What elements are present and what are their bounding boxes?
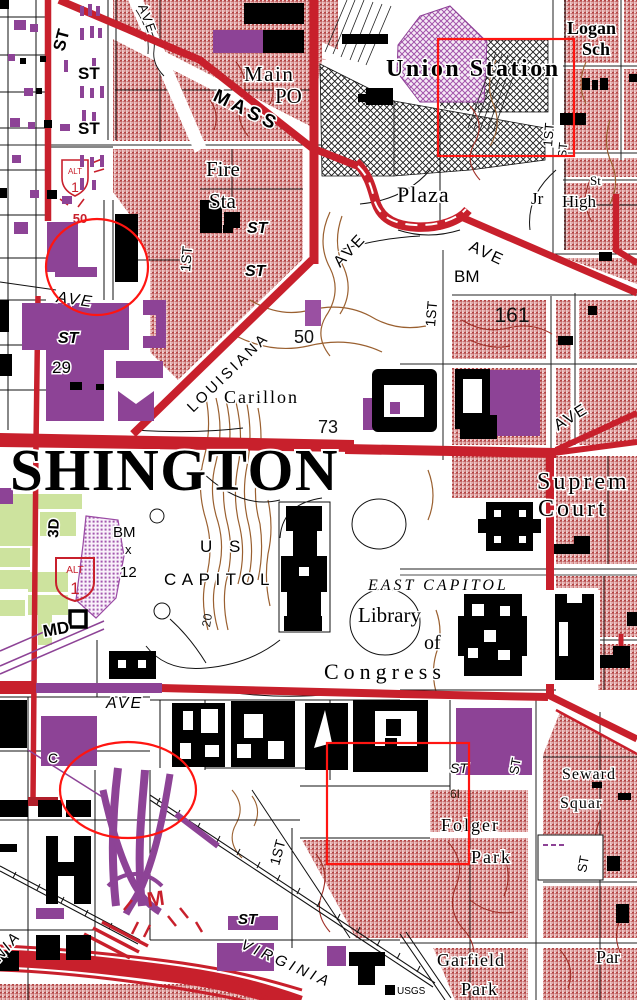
svg-text:50: 50 xyxy=(294,327,314,347)
svg-text:Folger: Folger xyxy=(441,815,500,835)
svg-text:USGS: USGS xyxy=(397,986,426,997)
svg-text:Carillon: Carillon xyxy=(224,387,299,407)
svg-text:29: 29 xyxy=(52,358,71,377)
svg-text:AVE: AVE xyxy=(105,695,143,712)
svg-text:ST: ST xyxy=(78,64,100,83)
svg-text:ALT: ALT xyxy=(66,565,84,576)
svg-text:1ST: 1ST xyxy=(422,300,440,327)
svg-text:161: 161 xyxy=(494,304,529,327)
svg-text:U S: U S xyxy=(200,537,246,556)
svg-text:Seward: Seward xyxy=(562,766,616,783)
svg-text:20: 20 xyxy=(199,612,215,628)
svg-text:BM: BM xyxy=(113,524,136,541)
svg-text:ST: ST xyxy=(574,854,592,873)
svg-text:ST: ST xyxy=(78,119,100,138)
svg-text:Squar: Squar xyxy=(560,795,602,812)
svg-text:Suprem: Suprem xyxy=(537,469,630,495)
svg-text:Sta: Sta xyxy=(209,189,237,213)
svg-text:ST: ST xyxy=(450,760,469,776)
svg-text:Garfield: Garfield xyxy=(437,950,505,970)
svg-text:1: 1 xyxy=(71,179,79,195)
svg-text:SHINGTON: SHINGTON xyxy=(10,437,339,503)
svg-text:3D: 3D xyxy=(45,518,63,538)
svg-text:Park: Park xyxy=(471,847,512,867)
svg-text:6I: 6I xyxy=(450,787,460,801)
svg-text:C: C xyxy=(48,750,58,766)
svg-text:Library: Library xyxy=(358,603,421,627)
svg-text:1: 1 xyxy=(70,579,79,598)
svg-text:Plaza: Plaza xyxy=(397,182,450,207)
svg-text:ST: ST xyxy=(245,263,267,280)
svg-text:1ST: 1ST xyxy=(540,122,557,147)
svg-text:M: M xyxy=(145,887,166,912)
svg-text:73: 73 xyxy=(318,417,338,437)
svg-text:High: High xyxy=(562,192,597,211)
svg-text:Park: Park xyxy=(461,979,498,999)
svg-text:1ST: 1ST xyxy=(177,245,195,272)
svg-text:ST: ST xyxy=(238,911,259,928)
svg-text:Fire: Fire xyxy=(206,157,240,181)
svg-text:Par: Par xyxy=(596,947,620,967)
svg-text:BM: BM xyxy=(454,267,480,286)
svg-text:St: St xyxy=(590,173,601,188)
svg-text:ST: ST xyxy=(247,220,269,237)
svg-text:Jr: Jr xyxy=(531,189,544,208)
svg-text:x: x xyxy=(125,542,132,557)
svg-text:of: of xyxy=(424,632,441,654)
svg-text:ST: ST xyxy=(506,756,524,775)
svg-text:CAPITOL: CAPITOL xyxy=(164,570,275,589)
svg-text:12: 12 xyxy=(120,564,137,581)
svg-text:Union Station: Union Station xyxy=(386,56,561,82)
svg-text:ALT: ALT xyxy=(68,167,82,176)
svg-text:Logan: Logan xyxy=(567,18,616,38)
svg-text:Congress: Congress xyxy=(324,659,446,684)
svg-text:PO: PO xyxy=(275,84,302,108)
svg-text:EAST CAPITOL: EAST CAPITOL xyxy=(367,577,509,594)
svg-text:Sch: Sch xyxy=(582,39,610,59)
svg-text:Main: Main xyxy=(244,62,294,86)
svg-text:Court: Court xyxy=(538,496,608,522)
svg-text:ST: ST xyxy=(58,330,80,347)
